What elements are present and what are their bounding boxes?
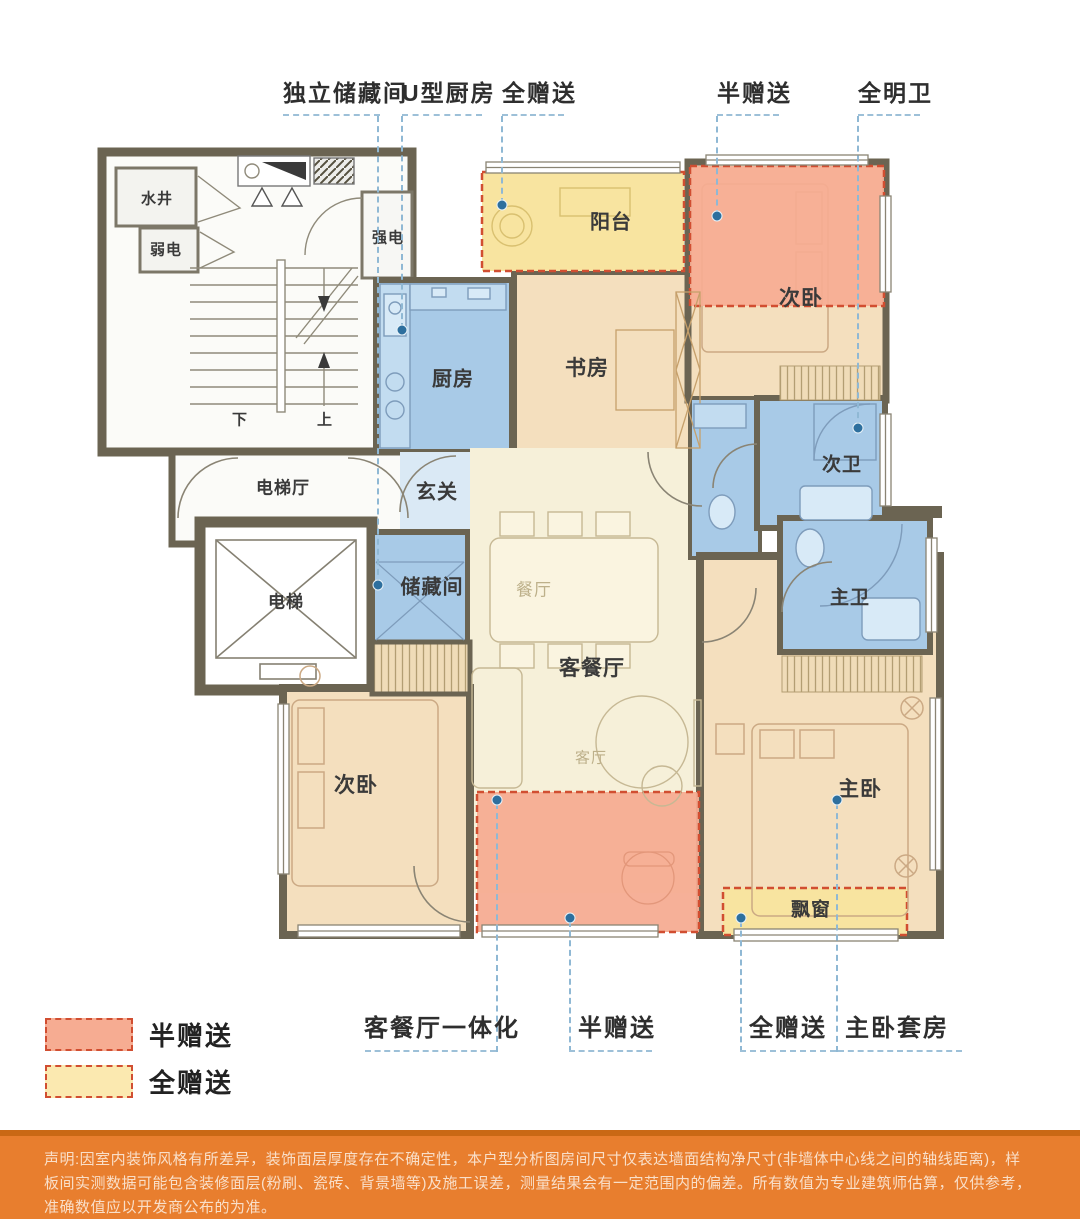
- callout-dot: [492, 795, 503, 806]
- label-bedroom2: 次卧: [779, 282, 823, 312]
- label-living-dining: 客餐厅: [559, 652, 625, 682]
- callout-line: [501, 116, 503, 204]
- callout-line: [377, 116, 379, 585]
- callout-underline: [717, 114, 779, 116]
- label-bay-window: 飘窗: [791, 895, 831, 922]
- legend-label-half-gift: 半赠送: [149, 1016, 233, 1053]
- label-stairs-down: 下: [232, 409, 248, 430]
- room-bedroom3: [283, 688, 470, 935]
- label-kitchen: 厨房: [432, 363, 474, 392]
- label-elevator: 电梯: [268, 588, 304, 613]
- label-water-well: 水井: [141, 188, 173, 209]
- label-elevator-hall: 电梯厅: [256, 474, 310, 499]
- callout-bright-bath: 全明卫: [858, 74, 933, 108]
- callout-dot: [712, 211, 723, 222]
- callout-underline: [502, 114, 564, 116]
- zone-living-half-gift: [477, 792, 699, 932]
- label-bath2: 次卫: [822, 450, 862, 477]
- callout-dot: [853, 423, 864, 434]
- disclaimer-bar: 声明:因室内装饰风格有所差异，装饰面层厚度存在不确定性，本户型分析图房间尺寸仅表…: [0, 1130, 1080, 1219]
- label-master-bath: 主卫: [830, 583, 870, 610]
- callout-dot: [497, 200, 508, 211]
- callout-underline: [838, 1050, 962, 1052]
- legend: 半赠送 全赠送: [45, 1016, 233, 1110]
- callout-underline: [858, 114, 920, 116]
- label-foyer: 玄关: [416, 476, 458, 505]
- legend-label-full-gift: 全赠送: [149, 1063, 233, 1100]
- label-bedroom3: 次卧: [334, 769, 378, 799]
- label-living: 客厅: [575, 747, 607, 768]
- callout-line: [716, 116, 718, 216]
- callout-line: [857, 116, 859, 428]
- callout-dot: [565, 913, 576, 924]
- disclaimer-text: 声明:因室内装饰风格有所差异，装饰面层厚度存在不确定性，本户型分析图房间尺寸仅表…: [44, 1148, 1034, 1219]
- floorplan-svg: [0, 0, 1080, 980]
- legend-row-full-gift: 全赠送: [45, 1063, 233, 1100]
- callout-full-gift-bottom: 全赠送: [749, 1008, 827, 1043]
- wall-step: [884, 506, 942, 518]
- legend-swatch-half-gift: [45, 1018, 133, 1051]
- callout-independent-storage: 独立储藏间: [283, 74, 408, 108]
- callout-open-living: 客餐厅一体化: [364, 1008, 520, 1043]
- callout-dot: [373, 580, 384, 591]
- label-dining: 餐厅: [516, 576, 552, 601]
- callout-dot: [832, 795, 843, 806]
- callout-u-kitchen: U型厨房: [402, 74, 496, 108]
- callout-line: [740, 921, 742, 1052]
- callout-line: [836, 803, 838, 1052]
- callout-underline: [365, 1050, 496, 1052]
- callout-half-gift-top: 半赠送: [717, 74, 792, 108]
- label-stairs-up: 上: [317, 409, 333, 430]
- legend-swatch-full-gift: [45, 1065, 133, 1098]
- callout-dot: [736, 913, 747, 924]
- label-storage: 储藏间: [401, 571, 464, 600]
- zone-balcony-full-gift: [482, 172, 684, 271]
- callout-underline: [283, 114, 380, 116]
- bedroom3-wardrobe: [372, 642, 470, 694]
- callout-line: [401, 116, 403, 329]
- label-balcony: 阳台: [590, 206, 632, 235]
- callout-master-suite: 主卧套房: [845, 1008, 949, 1043]
- callout-half-gift-bottom: 半赠送: [578, 1008, 656, 1043]
- callout-underline: [402, 114, 482, 116]
- label-weak-power: 弱电: [150, 239, 182, 260]
- legend-row-half-gift: 半赠送: [45, 1016, 233, 1053]
- label-study: 书房: [565, 352, 609, 382]
- floorplan-page: 水井 弱电 强电 下 上 电梯厅 电梯 厨房 玄关 储藏间 餐厅 客餐厅 客厅 …: [0, 0, 1080, 1219]
- callout-dot: [397, 325, 408, 336]
- callout-full-gift-top: 全赠送: [502, 74, 577, 108]
- callout-underline: [569, 1050, 652, 1052]
- callout-line: [569, 921, 571, 1052]
- callout-underline: [740, 1050, 836, 1052]
- label-master-bedroom: 主卧: [838, 773, 882, 803]
